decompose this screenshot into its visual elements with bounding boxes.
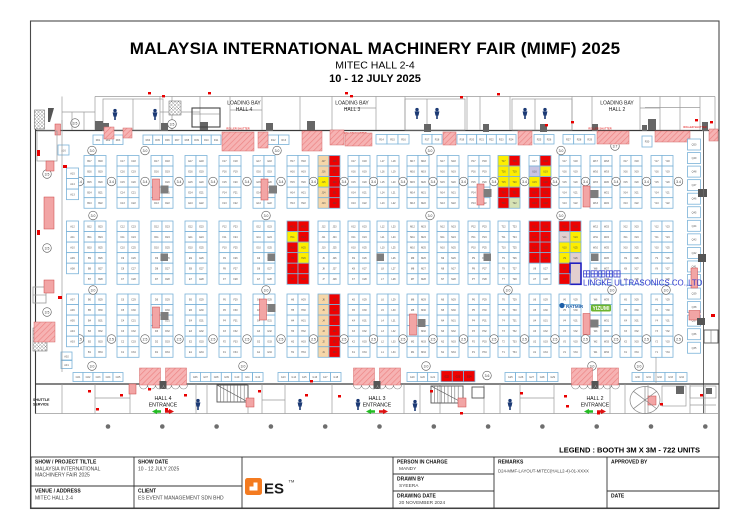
svg-text:G06: G06: [193, 376, 198, 379]
svg-text:F25: F25: [233, 246, 238, 249]
svg-text:A05: A05: [70, 319, 75, 322]
svg-text:M19: M19: [421, 170, 426, 173]
svg-text:M12: M12: [410, 225, 415, 228]
svg-text:2.5: 2.5: [583, 337, 588, 341]
svg-text:J18: J18: [333, 160, 338, 163]
svg-text:U32: U32: [543, 330, 548, 333]
svg-text:C34: C34: [131, 351, 136, 354]
svg-text:D13: D13: [154, 202, 159, 205]
svg-text:W13: W13: [593, 202, 599, 205]
svg-text:G01: G01: [76, 376, 81, 379]
svg-text:W31: W31: [604, 319, 610, 322]
svg-text:H22: H22: [301, 202, 306, 205]
svg-text:K12: K12: [351, 225, 356, 228]
svg-text:L22: L22: [392, 202, 397, 205]
svg-text:Y18: Y18: [665, 160, 670, 163]
svg-text:G16: G16: [312, 376, 317, 379]
svg-text:B34: B34: [98, 351, 103, 354]
svg-text:Y30: Y30: [665, 309, 670, 312]
svg-text:10 - 12 JULY 2025: 10 - 12 JULY 2025: [329, 73, 421, 85]
svg-text:T15: T15: [501, 181, 506, 184]
svg-text:ROLLER SHUTTER: ROLLER SHUTTER: [683, 125, 706, 129]
svg-text:Q49: Q49: [692, 157, 697, 160]
svg-text:Q38: Q38: [692, 306, 697, 309]
svg-text:2.5: 2.5: [177, 337, 182, 341]
svg-text:M24: M24: [421, 236, 426, 239]
svg-text:G18: G18: [267, 160, 272, 163]
svg-text:T31: T31: [512, 319, 517, 322]
svg-text:Y10: Y10: [654, 246, 659, 249]
svg-text:W20: W20: [604, 181, 610, 184]
svg-text:D33: D33: [165, 341, 170, 344]
svg-text:M29: M29: [421, 298, 426, 301]
svg-text:N25: N25: [451, 246, 456, 249]
svg-text:A12: A12: [70, 225, 75, 228]
svg-text:L24: L24: [392, 236, 397, 239]
svg-text:G09: G09: [224, 376, 229, 379]
svg-text:E26: E26: [199, 257, 204, 260]
svg-text:ENTRANCE: ENTRANCE: [363, 403, 392, 409]
svg-text:W25: W25: [604, 246, 610, 249]
svg-text:C13: C13: [120, 202, 125, 205]
svg-text:G29: G29: [550, 376, 555, 379]
svg-text:E20: E20: [199, 181, 204, 184]
svg-text:L19: L19: [392, 170, 397, 173]
svg-text:X25: X25: [634, 246, 639, 249]
svg-text:C14: C14: [120, 192, 125, 195]
svg-text:H19: H19: [301, 170, 306, 173]
svg-text:R03: R03: [116, 139, 121, 142]
svg-text:2.5: 2.5: [676, 337, 681, 341]
svg-text:C17: C17: [120, 160, 125, 163]
svg-text:G14: G14: [256, 192, 261, 195]
svg-text:3.4: 3.4: [245, 180, 250, 184]
svg-text:G27: G27: [267, 268, 272, 271]
svg-text:L23: L23: [392, 225, 397, 228]
svg-text:Q36: Q36: [692, 333, 697, 336]
svg-text:K29: K29: [362, 298, 367, 301]
svg-text:ROLLER SHUTTER: ROLLER SHUTTER: [226, 127, 249, 131]
svg-text:H29: H29: [301, 298, 306, 301]
svg-text:L17: L17: [381, 160, 386, 163]
svg-text:N10: N10: [440, 246, 445, 249]
svg-text:G30: G30: [635, 376, 640, 379]
svg-text:L28: L28: [392, 278, 397, 281]
svg-text:F12: F12: [222, 225, 227, 228]
svg-text:Y14: Y14: [654, 192, 659, 195]
svg-text:B22: B22: [98, 202, 103, 205]
svg-text:P34: P34: [482, 351, 487, 354]
svg-text:Q45: Q45: [692, 211, 697, 214]
svg-text:R28: R28: [577, 138, 582, 141]
svg-text:J12: J12: [322, 225, 327, 228]
svg-text:A04: A04: [70, 330, 75, 333]
svg-text:E33: E33: [199, 341, 204, 344]
svg-text:V14: V14: [562, 192, 567, 195]
svg-text:N11: N11: [440, 236, 445, 239]
svg-text:U33: U33: [543, 341, 548, 344]
svg-text:J22: J22: [333, 202, 338, 205]
svg-text:HALL 4: HALL 4: [236, 107, 253, 113]
svg-text:R04: R04: [146, 139, 151, 142]
svg-text:2.5: 2.5: [143, 337, 148, 341]
svg-text:P33: P33: [482, 341, 487, 344]
svg-text:L26: L26: [392, 257, 397, 260]
svg-text:V15: V15: [562, 181, 567, 184]
svg-text:K34: K34: [362, 351, 367, 354]
svg-text:G29: G29: [267, 298, 272, 301]
svg-text:J28: J28: [333, 278, 338, 281]
svg-text:3.4: 3.4: [371, 180, 376, 184]
svg-text:M17: M17: [410, 160, 415, 163]
svg-text:F27: F27: [233, 268, 238, 271]
svg-text:B29: B29: [98, 298, 103, 301]
svg-text:T18: T18: [512, 160, 517, 163]
svg-text:U23: U23: [543, 225, 548, 228]
svg-text:HALL 2: HALL 2: [586, 396, 603, 402]
svg-text:G26: G26: [519, 376, 524, 379]
svg-text:D34: D34: [165, 351, 170, 354]
svg-text:G24: G24: [267, 236, 272, 239]
svg-text:3.4: 3.4: [644, 180, 649, 184]
svg-text:MITEC HALL 2-4: MITEC HALL 2-4: [335, 60, 415, 72]
svg-text:MITEC HALL 2-4: MITEC HALL 2-4: [35, 496, 73, 502]
svg-text:G32: G32: [267, 330, 272, 333]
svg-text:C30: C30: [131, 309, 136, 312]
svg-text:P31: P31: [482, 319, 487, 322]
svg-text:U14: U14: [532, 192, 537, 195]
svg-text:3.4: 3.4: [143, 180, 148, 184]
svg-text:X21: X21: [634, 192, 639, 195]
svg-text:T17: T17: [501, 160, 506, 163]
svg-text:R09: R09: [194, 139, 199, 142]
svg-text:E25: E25: [199, 246, 204, 249]
svg-text:G28: G28: [540, 376, 545, 379]
svg-text:U17: U17: [532, 160, 537, 163]
svg-text:G23: G23: [267, 225, 272, 228]
svg-text:Y23: Y23: [665, 225, 670, 228]
svg-text:Q42: Q42: [692, 252, 697, 255]
svg-text:VENUE / ADDRESS: VENUE / ADDRESS: [35, 489, 81, 495]
svg-text:H18: H18: [301, 160, 306, 163]
svg-text:G31: G31: [267, 319, 272, 322]
svg-text:C21: C21: [131, 192, 136, 195]
svg-text:3.0: 3.0: [275, 149, 280, 153]
svg-text:T34: T34: [512, 351, 517, 354]
svg-text:A14: A14: [70, 183, 75, 186]
svg-text:C25: C25: [131, 246, 136, 249]
svg-text:ENTRANCE: ENTRANCE: [149, 403, 178, 409]
svg-text:V34: V34: [573, 351, 578, 354]
svg-text:W34: W34: [604, 351, 610, 354]
svg-text:Y19: Y19: [665, 170, 670, 173]
svg-text:W29: W29: [604, 298, 610, 301]
svg-text:R07: R07: [175, 139, 180, 142]
svg-text:E32: E32: [199, 330, 204, 333]
svg-text:J31: J31: [333, 319, 338, 322]
svg-text:HALL 3: HALL 3: [344, 107, 361, 113]
svg-text:W12: W12: [593, 225, 599, 228]
svg-text:U11: U11: [532, 236, 537, 239]
svg-text:R16: R16: [401, 138, 406, 141]
svg-text:H15: H15: [290, 181, 295, 184]
svg-text:T11: T11: [502, 236, 507, 239]
svg-text:V11: V11: [562, 236, 567, 239]
svg-text:B15: B15: [87, 181, 92, 184]
svg-text:B21: B21: [98, 192, 103, 195]
svg-text:T23: T23: [512, 225, 517, 228]
svg-text:M32: M32: [421, 330, 426, 333]
svg-text:3.6: 3.6: [485, 374, 490, 378]
svg-text:B12: B12: [87, 225, 92, 228]
svg-text:F24: F24: [233, 236, 238, 239]
svg-text:J14: J14: [322, 192, 327, 195]
svg-text:K14: K14: [351, 192, 356, 195]
svg-text:U12: U12: [532, 225, 537, 228]
svg-text:2.5: 2.5: [644, 337, 649, 341]
svg-text:RATMIR: RATMIR: [566, 304, 584, 309]
svg-text:G10: G10: [256, 246, 261, 249]
svg-text:K30: K30: [362, 309, 367, 312]
svg-text:E23: E23: [199, 225, 204, 228]
svg-text:H12: H12: [290, 225, 295, 228]
svg-text:R15: R15: [390, 138, 395, 141]
svg-text:F16: F16: [222, 170, 227, 173]
svg-text:G04: G04: [106, 376, 111, 379]
svg-text:A07: A07: [70, 298, 75, 301]
svg-text:Y29: Y29: [665, 298, 670, 301]
svg-text:N23: N23: [451, 225, 456, 228]
svg-text:B30: B30: [98, 309, 103, 312]
svg-text:B23: B23: [98, 225, 103, 228]
svg-text:N20: N20: [451, 181, 456, 184]
svg-text:R08: R08: [185, 139, 190, 142]
svg-text:X13: X13: [623, 202, 628, 205]
svg-text:APPROVED BY: APPROVED BY: [611, 460, 648, 466]
svg-text:A09: A09: [70, 257, 75, 260]
svg-text:P29: P29: [482, 298, 487, 301]
svg-text:T28: T28: [512, 278, 517, 281]
svg-text:LEGEND : BOOTH 3M X 3M - 722 U: LEGEND : BOOTH 3M X 3M - 722 UNITS: [559, 446, 700, 455]
svg-text:R29: R29: [587, 138, 592, 141]
svg-text:L12: L12: [381, 225, 386, 228]
svg-text:Y26: Y26: [665, 257, 670, 260]
svg-text:X16: X16: [623, 170, 628, 173]
svg-text:R26: R26: [547, 138, 552, 141]
svg-text:T24: T24: [512, 236, 517, 239]
svg-text:2.5: 2.5: [522, 337, 527, 341]
svg-text:G03: G03: [96, 376, 101, 379]
svg-text:H14: H14: [290, 192, 295, 195]
svg-text:K28: K28: [362, 278, 367, 281]
svg-text:N12: N12: [440, 225, 445, 228]
svg-text:J30: J30: [333, 309, 338, 312]
svg-text:X20: X20: [634, 181, 639, 184]
svg-text:B31: B31: [98, 319, 103, 322]
svg-text:L34: L34: [392, 351, 397, 354]
svg-text:3.4: 3.4: [401, 180, 406, 184]
svg-text:P32: P32: [482, 330, 487, 333]
svg-text:MACHINERY FAIR 2025: MACHINERY FAIR 2025: [35, 473, 90, 479]
svg-text:G22: G22: [267, 202, 272, 205]
svg-text:G19: G19: [267, 170, 272, 173]
svg-text:N31: N31: [451, 319, 456, 322]
svg-text:T27: T27: [512, 268, 517, 271]
svg-text:G33: G33: [668, 376, 673, 379]
svg-text:W19: W19: [604, 170, 610, 173]
svg-text:D11: D11: [154, 236, 159, 239]
svg-text:A01: A01: [64, 364, 69, 367]
svg-text:X19: X19: [634, 170, 639, 173]
svg-text:U18: U18: [543, 160, 548, 163]
svg-text:B16: B16: [87, 170, 92, 173]
svg-text:YIZUMI: YIZUMI: [593, 306, 611, 312]
svg-text:A02: A02: [64, 355, 69, 358]
svg-text:T29: T29: [512, 298, 517, 301]
svg-text:M33: M33: [421, 341, 426, 344]
svg-text:X17: X17: [623, 160, 628, 163]
svg-text:K13: K13: [351, 202, 356, 205]
svg-text:C19: C19: [131, 170, 136, 173]
svg-text:F32: F32: [233, 330, 238, 333]
svg-text:H23: H23: [301, 225, 306, 228]
svg-text:P25: P25: [482, 246, 487, 249]
svg-text:E13: E13: [188, 202, 193, 205]
svg-text:C23: C23: [131, 225, 136, 228]
svg-text:K22: K22: [362, 202, 367, 205]
svg-text:3.0: 3.0: [428, 214, 433, 218]
svg-text:L32: L32: [392, 330, 397, 333]
svg-text:G25: G25: [267, 246, 272, 249]
svg-text:P16: P16: [471, 170, 476, 173]
svg-text:SYEERA: SYEERA: [399, 483, 419, 489]
svg-text:X23: X23: [634, 225, 639, 228]
svg-text:G19: G19: [410, 376, 415, 379]
svg-text:G27: G27: [529, 376, 534, 379]
svg-text:L11: L11: [381, 236, 385, 239]
svg-text:G34: G34: [267, 351, 272, 354]
svg-text:A15: A15: [70, 172, 75, 175]
svg-text:K15: K15: [351, 181, 356, 184]
svg-text:3.0: 3.0: [264, 288, 269, 292]
svg-text:M28: M28: [421, 278, 426, 281]
svg-text:W10: W10: [593, 246, 599, 249]
svg-text:Y22: Y22: [665, 202, 670, 205]
svg-text:V26: V26: [573, 257, 578, 260]
svg-text:T10: T10: [501, 246, 506, 249]
svg-text:H34: H34: [301, 351, 306, 354]
svg-text:B24: B24: [98, 236, 103, 239]
svg-text:V33: V33: [573, 341, 578, 344]
svg-text:3.4: 3.4: [522, 180, 527, 184]
svg-text:B10: B10: [87, 246, 92, 249]
svg-text:H26: H26: [301, 257, 306, 260]
svg-text:LOADING BAY: LOADING BAY: [227, 101, 261, 107]
svg-text:V20: V20: [573, 181, 578, 184]
svg-text:R12: R12: [271, 139, 276, 142]
svg-text:U10: U10: [532, 246, 537, 249]
svg-text:MALAYSIA INTERNATIONAL MACHINE: MALAYSIA INTERNATIONAL MACHINERY FAIR (M…: [130, 39, 621, 58]
svg-text:K31: K31: [362, 319, 367, 322]
svg-text:W16: W16: [593, 170, 599, 173]
svg-text:G32: G32: [657, 376, 662, 379]
svg-text:B20: B20: [98, 181, 103, 184]
svg-text:R23: R23: [499, 138, 504, 141]
svg-text:E18: E18: [199, 160, 204, 163]
svg-text:F10: F10: [222, 246, 227, 249]
svg-text:D18: D18: [165, 160, 170, 163]
svg-text:M22: M22: [421, 202, 426, 205]
svg-text:M20: M20: [421, 181, 426, 184]
svg-text:3.0: 3.0: [637, 364, 642, 368]
svg-text:A08: A08: [70, 268, 75, 271]
svg-text:R25: R25: [537, 138, 542, 141]
svg-text:E29: E29: [199, 298, 204, 301]
svg-text:G21: G21: [430, 376, 435, 379]
svg-text:M13: M13: [410, 202, 415, 205]
svg-text:3.4: 3.4: [431, 180, 436, 184]
svg-text:X30: X30: [634, 309, 639, 312]
svg-text:E30: E30: [199, 309, 204, 312]
svg-text:P11: P11: [471, 236, 476, 239]
svg-text:B28: B28: [98, 278, 103, 281]
svg-text:T12: T12: [501, 225, 506, 228]
svg-text:20 NOVEMBER 2024: 20 NOVEMBER 2024: [399, 500, 445, 506]
svg-text:T32: T32: [512, 330, 517, 333]
svg-text:A06: A06: [70, 309, 75, 312]
svg-text:D30: D30: [165, 309, 170, 312]
svg-text:E15: E15: [188, 181, 193, 184]
svg-text:L10: L10: [381, 246, 386, 249]
svg-text:M25: M25: [421, 246, 426, 249]
svg-text:H25: H25: [301, 246, 306, 249]
svg-text:P28: P28: [482, 278, 487, 281]
svg-text:C24: C24: [131, 236, 136, 239]
svg-text:G08: G08: [214, 376, 219, 379]
svg-text:U15: U15: [532, 181, 537, 184]
svg-text:T16: T16: [501, 170, 506, 173]
svg-text:V18: V18: [573, 160, 578, 163]
svg-text:N33: N33: [451, 341, 456, 344]
svg-text:Q47: Q47: [692, 184, 697, 187]
svg-text:J21: J21: [333, 192, 338, 195]
svg-text:Y13: Y13: [654, 202, 659, 205]
svg-text:N16: N16: [440, 170, 445, 173]
svg-text:K11: K11: [351, 236, 356, 239]
svg-text:C22: C22: [131, 202, 136, 205]
svg-text:B17: B17: [87, 160, 92, 163]
svg-text:D32: D32: [165, 330, 170, 333]
svg-text:G14: G14: [291, 376, 296, 379]
svg-text:R24: R24: [509, 138, 514, 141]
svg-text:U30: U30: [543, 309, 548, 312]
svg-text:G33: G33: [267, 341, 272, 344]
svg-text:X32: X32: [634, 330, 639, 333]
svg-text:3.0: 3.0: [664, 288, 669, 292]
svg-text:H17: H17: [290, 160, 295, 163]
svg-text:LOADING BAY: LOADING BAY: [335, 101, 369, 107]
svg-text:R30: R30: [645, 141, 650, 144]
svg-text:E10: E10: [188, 246, 193, 249]
svg-text:J15: J15: [322, 181, 327, 184]
svg-text:F20: F20: [233, 181, 238, 184]
svg-text:R19: R19: [460, 138, 465, 141]
svg-text:E16: E16: [188, 170, 193, 173]
svg-text:E31: E31: [199, 319, 204, 322]
svg-text:R27: R27: [566, 138, 571, 141]
svg-text:Q48: Q48: [692, 171, 697, 174]
svg-text:Y21: Y21: [665, 192, 670, 195]
